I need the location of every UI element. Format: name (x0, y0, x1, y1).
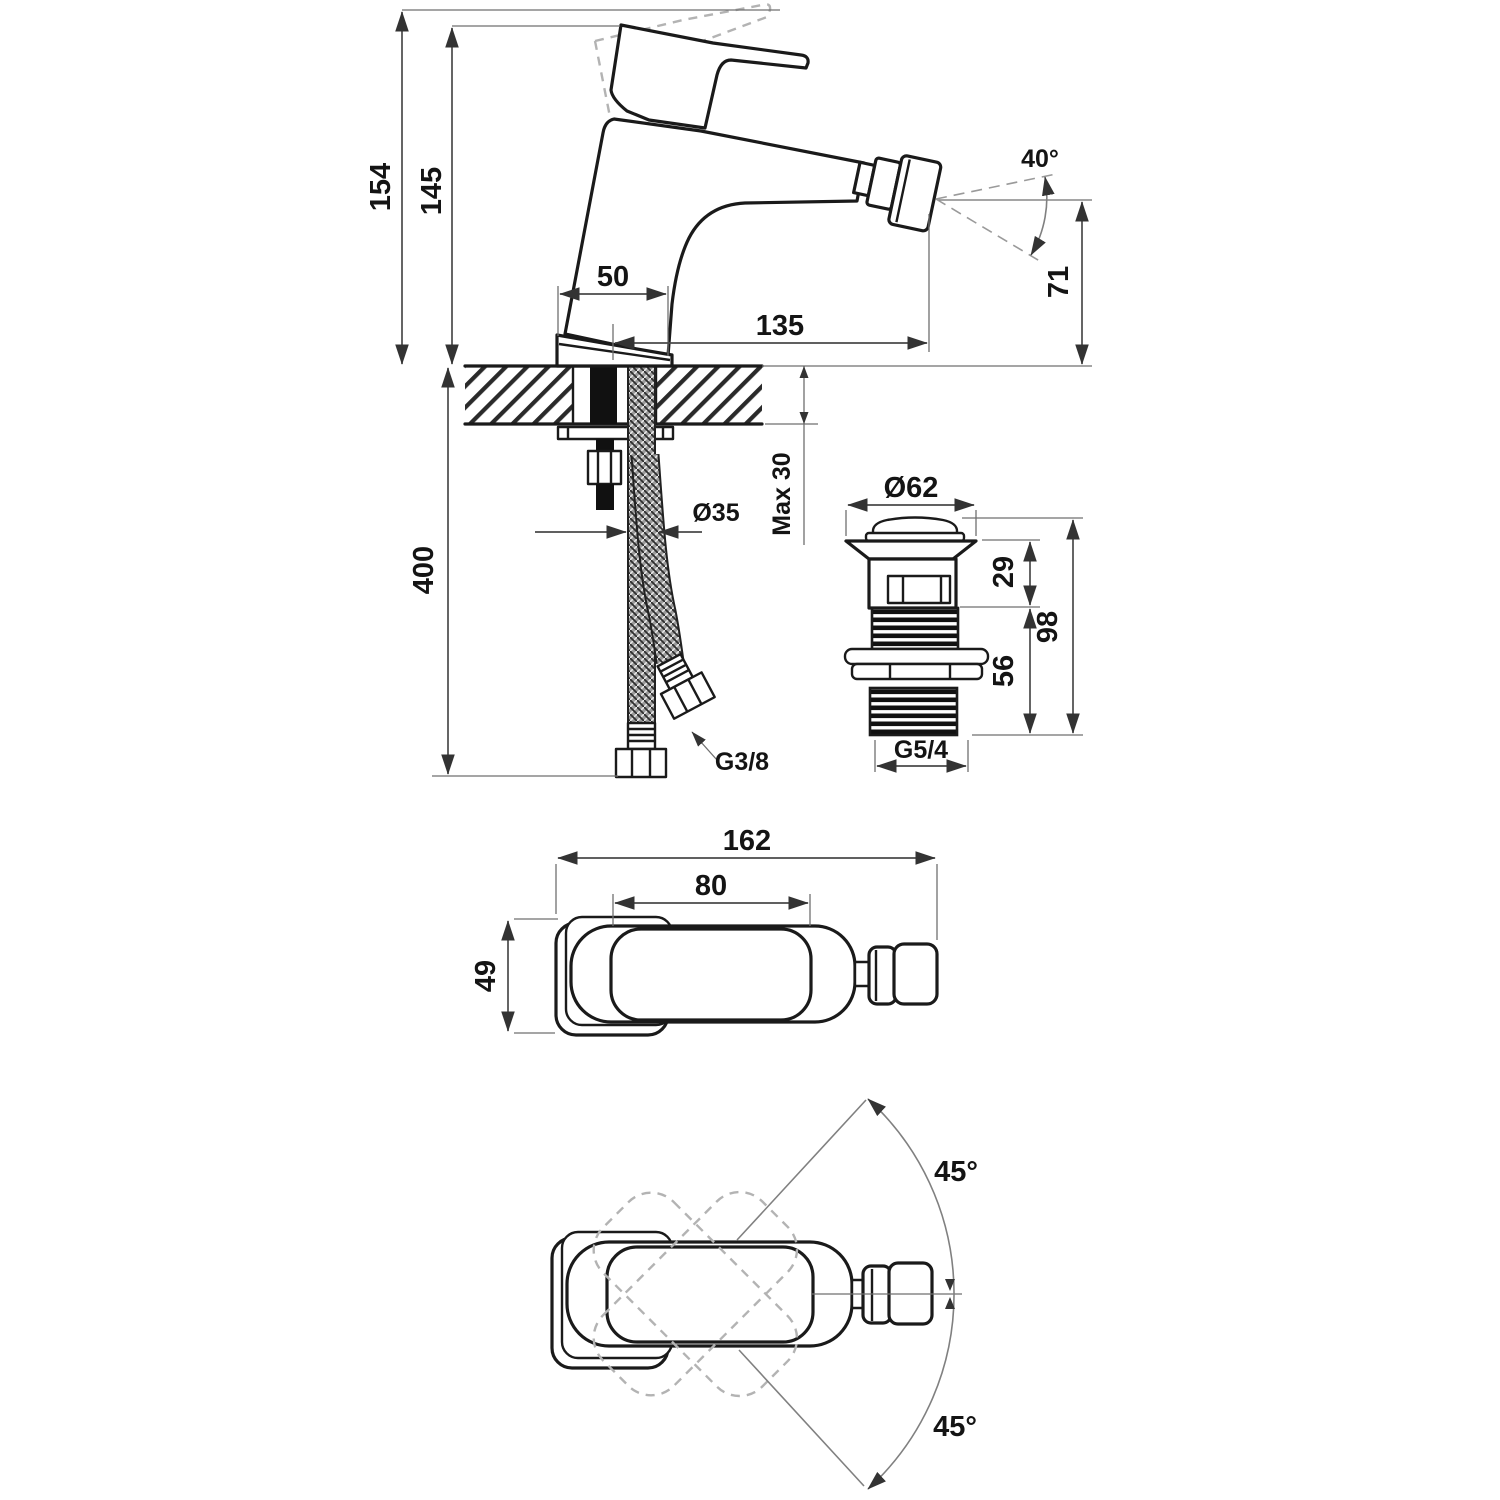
dim-d62-label: Ø62 (884, 472, 939, 504)
swivel-upper-label: 45° (934, 1156, 978, 1188)
dim-max30-label: Max 30 (768, 452, 796, 535)
dim-d35-label: Ø35 (692, 499, 739, 527)
hose1-nut (616, 749, 666, 777)
g38-label: G3/8 (715, 748, 769, 776)
faucet-body (565, 119, 864, 356)
spray-upper-ray (936, 174, 1056, 199)
waste-flared-top (846, 541, 976, 559)
handle-top-outline (607, 1247, 813, 1342)
arrow-up (800, 366, 809, 378)
dim-80-label: 80 (695, 870, 727, 902)
dim-154-label: 154 (365, 163, 397, 211)
spray-angle-label: 40° (1021, 145, 1059, 173)
handle-top-outline (611, 929, 811, 1020)
dim-400-label: 400 (408, 546, 440, 594)
fixing-nut (588, 451, 621, 484)
dim-56-label: 56 (988, 655, 1020, 687)
faucet-handle (611, 25, 808, 128)
drawing-canvas: 40° 154 145 50 135 71 Max 30 (0, 0, 1500, 1500)
fixing-stud (596, 439, 614, 451)
dim-135-label: 135 (756, 310, 804, 342)
drain-figure: Ø62 29 56 98 G5/4 (845, 472, 1083, 772)
waste-thread-lower (870, 688, 957, 735)
dim-145-label: 145 (416, 167, 448, 215)
waste-locknut (852, 664, 982, 679)
waste-thread-upper (872, 608, 958, 649)
spray-angle-arc (1031, 177, 1047, 255)
spray-angle-annotation: 40° (936, 145, 1092, 263)
dim-162-label: 162 (723, 825, 771, 857)
top-view-figure: 162 80 49 (470, 825, 937, 1035)
swivel-lower-label: 45° (933, 1411, 977, 1443)
dim-29-label: 29 (988, 556, 1020, 588)
g38-leader (692, 732, 717, 760)
dim-98-label: 98 (1032, 611, 1064, 643)
waste-flange (845, 649, 988, 664)
stud-tip (596, 484, 614, 510)
swivel-upper-ray (737, 1100, 866, 1240)
technical-drawing: 40° 154 145 50 135 71 Max 30 (0, 0, 1500, 1500)
dim-49-label: 49 (470, 960, 502, 992)
deck-hatch-left (465, 366, 573, 424)
dim-g54-label: G5/4 (894, 736, 948, 764)
threaded-shank (590, 366, 617, 424)
aerator-cap (894, 944, 937, 1004)
dim-71-label: 71 (1043, 266, 1075, 298)
swivel-lower-ray (739, 1350, 864, 1486)
dim-50-label: 50 (597, 261, 629, 293)
arrow-down (800, 412, 809, 424)
deck-hatch-right (656, 366, 762, 424)
aerator-nozzle (849, 147, 942, 232)
spray-lower-ray (936, 199, 1043, 263)
aerator-ring (869, 947, 896, 1004)
swivel-figure: 45° 45° (552, 1099, 978, 1489)
